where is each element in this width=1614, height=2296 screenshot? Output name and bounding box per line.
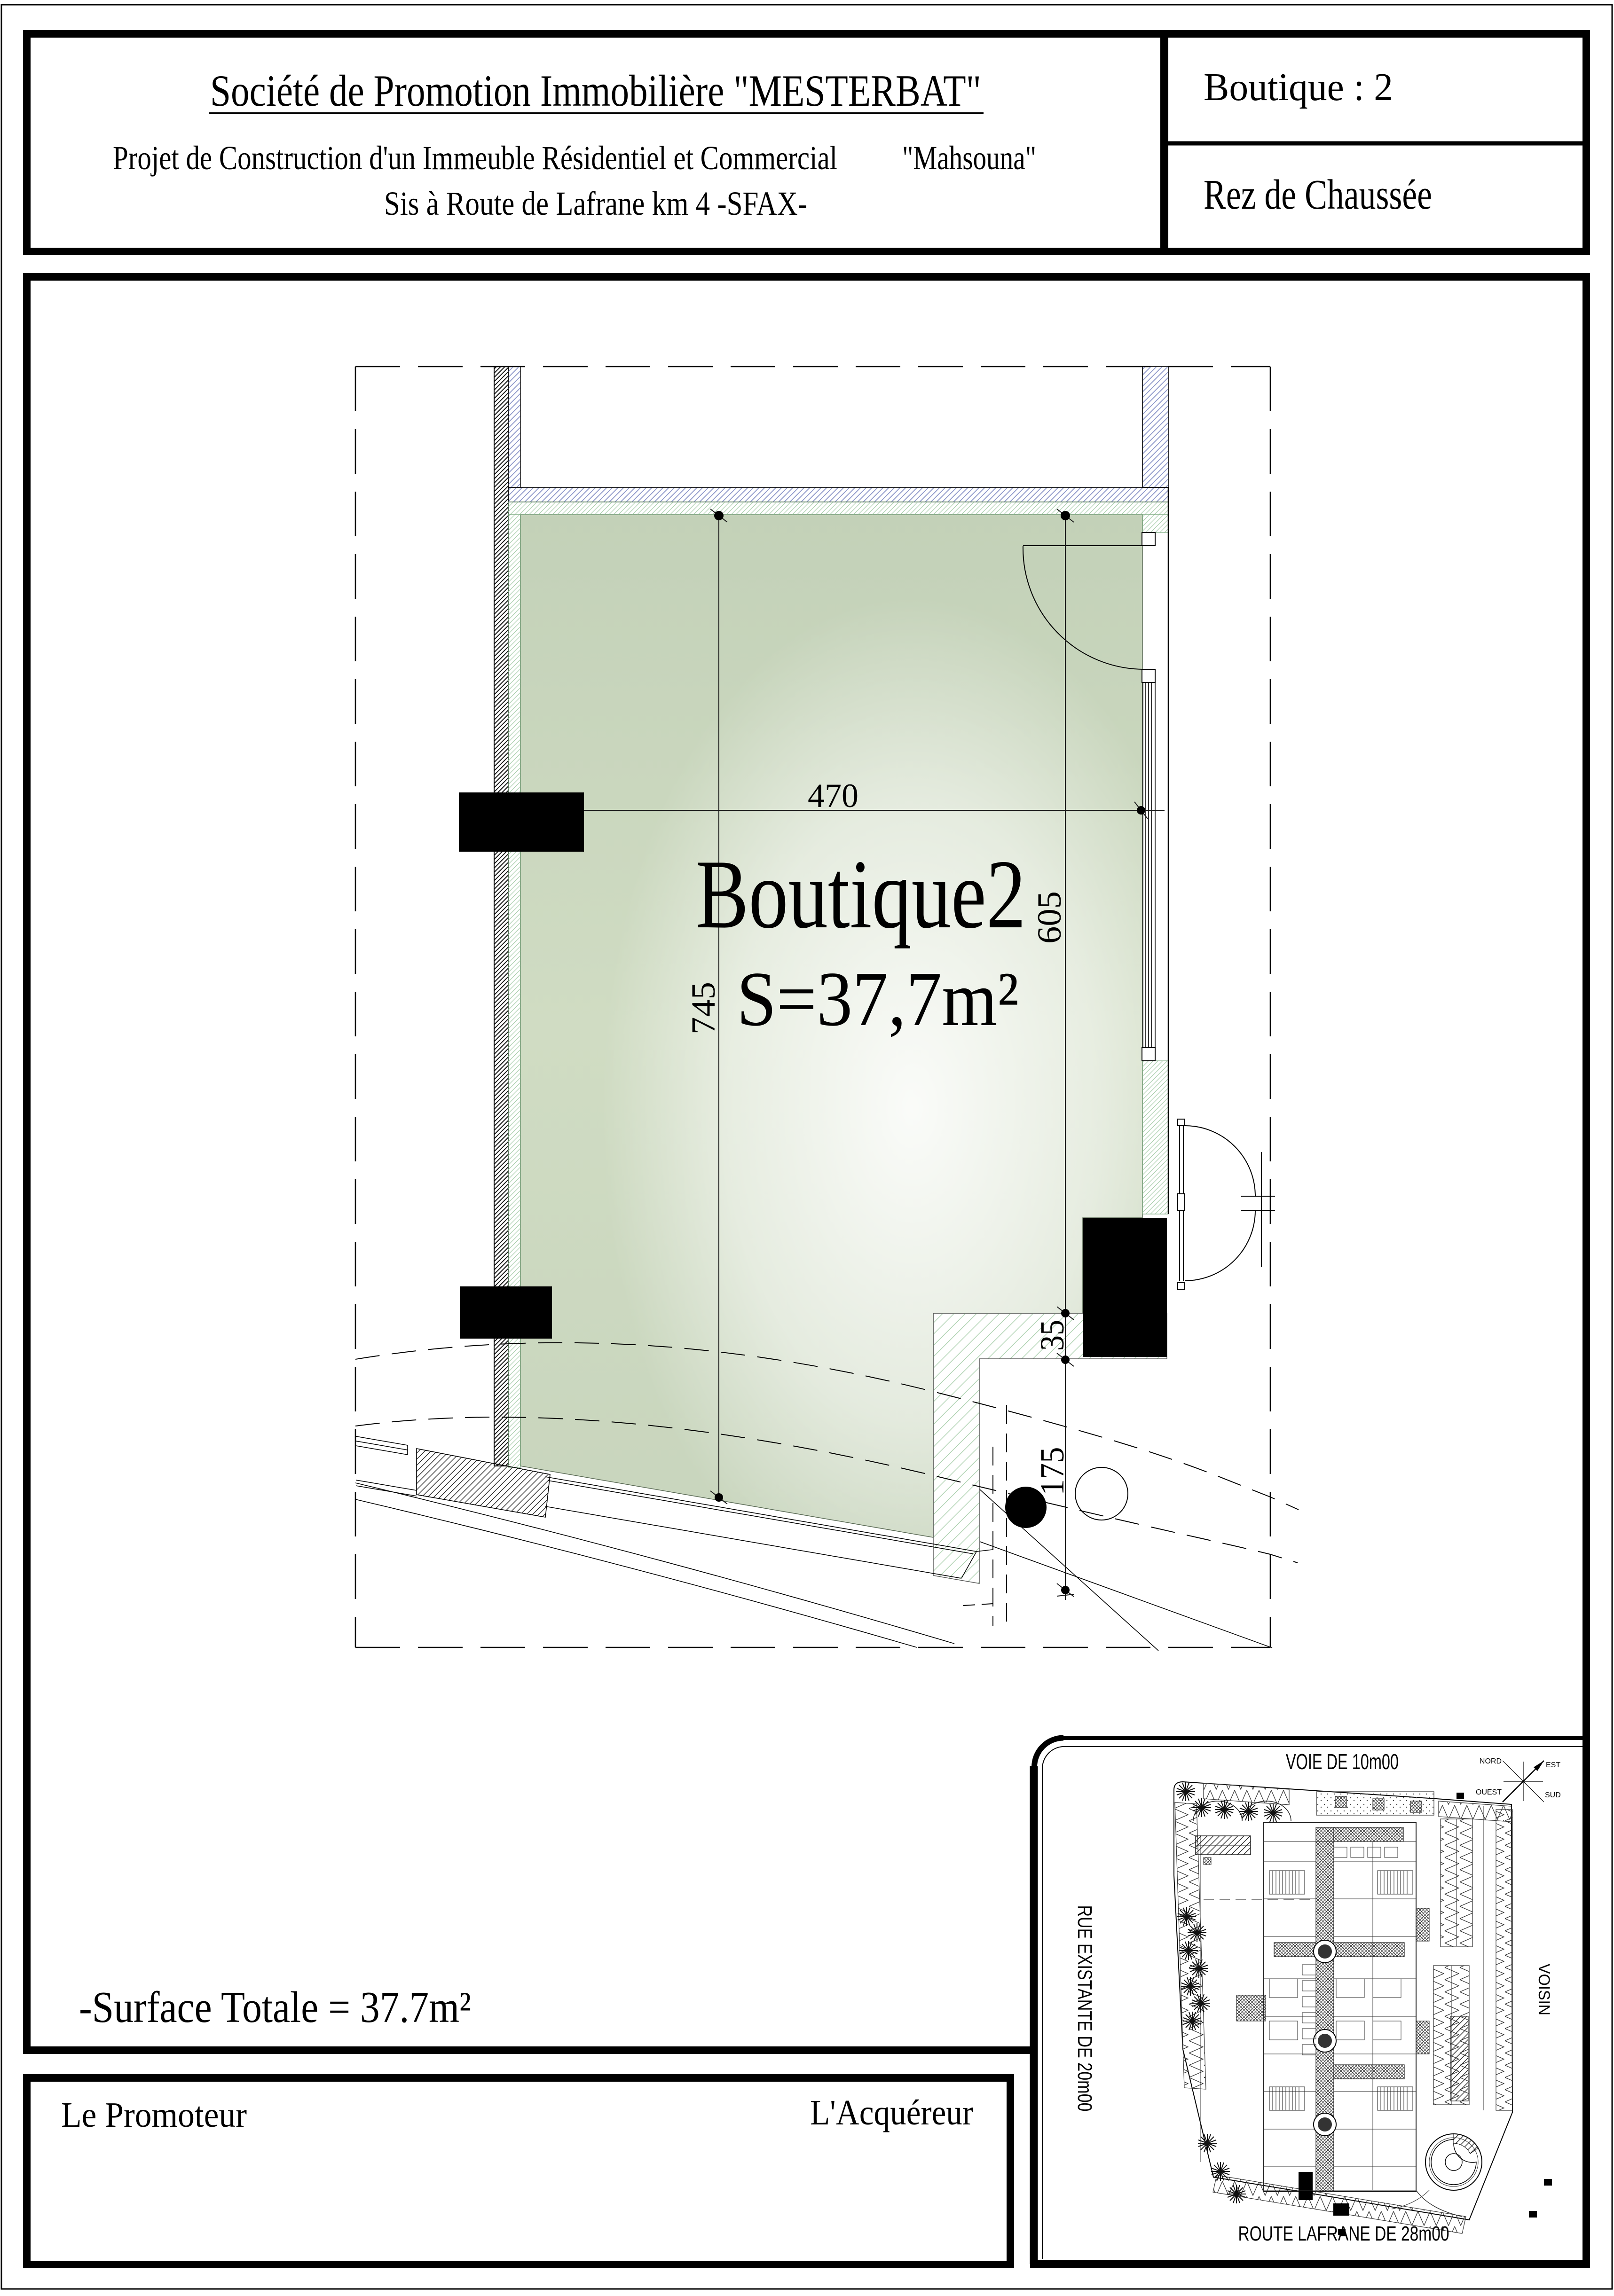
svg-text:605: 605 bbox=[1031, 891, 1068, 944]
svg-text:VOIE DE 10m00: VOIE DE 10m00 bbox=[1286, 1749, 1399, 1774]
svg-text:VOISIN: VOISIN bbox=[1535, 1964, 1553, 2015]
svg-text:-Surface Totale = 37.7m²: -Surface Totale = 37.7m² bbox=[79, 1983, 471, 2032]
svg-text:RUE EXISTANTE DE 20m00: RUE EXISTANTE DE 20m00 bbox=[1073, 1905, 1096, 2112]
svg-text:470: 470 bbox=[808, 777, 858, 815]
svg-text:ROUTE LAFRANE DE 28m00: ROUTE LAFRANE DE 28m00 bbox=[1238, 2222, 1449, 2245]
svg-text:Projet de Construction d'un Im: Projet de Construction d'un Immeuble Rés… bbox=[113, 139, 837, 177]
svg-text:SUD: SUD bbox=[1545, 1791, 1561, 1799]
svg-text:EST: EST bbox=[1546, 1761, 1560, 1769]
svg-text:Boutique2: Boutique2 bbox=[696, 840, 1026, 949]
svg-text:L'Acquéreur: L'Acquéreur bbox=[810, 2093, 973, 2132]
svg-text:"Mahsouna": "Mahsouna" bbox=[902, 139, 1036, 177]
svg-text:Boutique : 2: Boutique : 2 bbox=[1204, 65, 1393, 109]
svg-text:OUEST: OUEST bbox=[1476, 1788, 1502, 1796]
svg-text:Rez de Chaussée: Rez de Chaussée bbox=[1204, 172, 1432, 218]
svg-text:745: 745 bbox=[685, 982, 722, 1034]
svg-text:NORD: NORD bbox=[1480, 1757, 1502, 1765]
svg-text:Le Promoteur: Le Promoteur bbox=[61, 2095, 247, 2135]
svg-text:Société de Promotion Immobiliè: Société de Promotion Immobilière "MESTER… bbox=[210, 66, 981, 116]
svg-text:S=37,7m²: S=37,7m² bbox=[737, 956, 1019, 1042]
svg-text:Sis à Route de Lafrane km 4 -: Sis à Route de Lafrane km 4 -SFAX- bbox=[384, 185, 807, 222]
svg-text:175: 175 bbox=[1033, 1447, 1071, 1496]
svg-text:35: 35 bbox=[1033, 1320, 1071, 1351]
